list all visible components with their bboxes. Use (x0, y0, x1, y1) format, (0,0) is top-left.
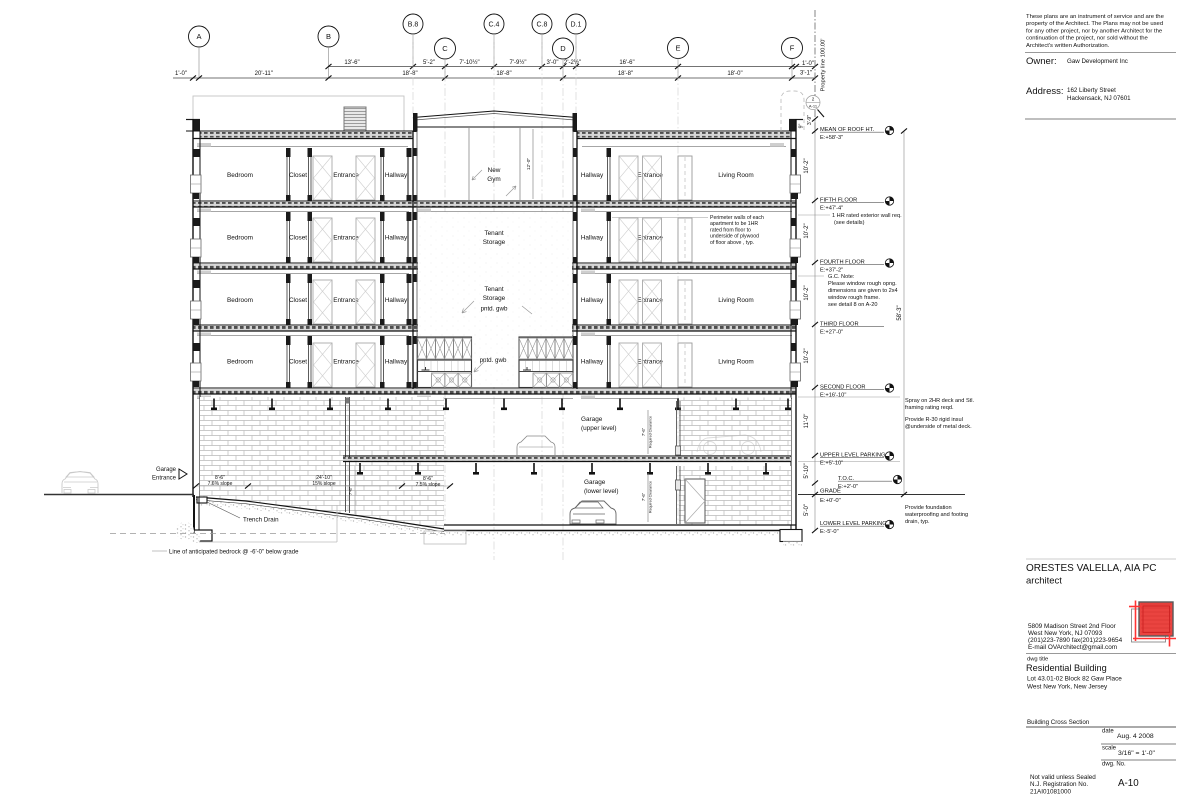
svg-text:5809 Madison Street 2nd Floor: 5809 Madison Street 2nd Floor (1028, 623, 1117, 630)
svg-text:Line of anticipated bedrock @: Line of anticipated bedrock @ -6'-0" bel… (169, 550, 299, 556)
svg-text:9": 9" (799, 123, 805, 128)
svg-text:13'-6": 13'-6" (344, 60, 359, 66)
svg-text:Provide R-30 rigid insul: Provide R-30 rigid insul (905, 417, 963, 423)
svg-text:C.8: C.8 (537, 22, 548, 29)
svg-text:dwg. No.: dwg. No. (1102, 762, 1126, 768)
svg-text:for any other project, nor by: for any other project, nor by another Ar… (1026, 28, 1163, 34)
svg-text:7.6% slope: 7.6% slope (208, 481, 233, 487)
svg-text:(201)223-7890 fax(201)223-9654: (201)223-7890 fax(201)223-9654 (1028, 637, 1123, 644)
svg-text:Bedroom: Bedroom (227, 235, 253, 242)
svg-text:10'-2": 10'-2" (804, 223, 810, 238)
svg-text:D.1: D.1 (571, 22, 582, 29)
svg-text:Hallway: Hallway (581, 235, 604, 242)
svg-text:pntd. gwb: pntd. gwb (481, 306, 508, 313)
svg-text:E-mail OVArchitect@gmail.com: E-mail OVArchitect@gmail.com (1028, 644, 1117, 651)
svg-text:E:+2'-0": E:+2'-0" (838, 484, 858, 490)
svg-text:Bedroom: Bedroom (227, 297, 253, 304)
svg-text:A-11: A-11 (809, 104, 818, 109)
svg-text:Entrance: Entrance (333, 235, 359, 242)
svg-text:E:+27'-0": E:+27'-0" (820, 330, 843, 336)
svg-text:Address:: Address: (1026, 86, 1064, 97)
svg-text:Living Room: Living Room (718, 359, 754, 366)
svg-text:Building Cross Section: Building Cross Section (1027, 719, 1090, 726)
svg-text:Entrance: Entrance (637, 297, 663, 304)
svg-text:continuation of the project, n: continuation of the project, nor sold wi… (1026, 36, 1149, 42)
svg-text:GRADE: GRADE (820, 489, 841, 495)
svg-text:Storage: Storage (483, 239, 506, 246)
svg-text:(upper level): (upper level) (581, 425, 617, 432)
svg-text:B: B (326, 32, 331, 41)
svg-text:Spray on 2HR deck and Stl.: Spray on 2HR deck and Stl. (905, 398, 974, 404)
svg-text:3'-0": 3'-0" (547, 60, 559, 66)
svg-text:15% slope: 15% slope (312, 481, 336, 487)
svg-text:@underside of metal deck.: @underside of metal deck. (905, 424, 972, 430)
svg-text:E: E (675, 44, 680, 53)
svg-text:Closet: Closet (289, 235, 307, 242)
svg-text:G.C. Note:: G.C. Note: (828, 274, 855, 280)
svg-text:7'-10½": 7'-10½" (459, 59, 479, 66)
svg-text:E:+58'-3": E:+58'-3" (820, 135, 843, 141)
svg-text:16'-6": 16'-6" (619, 60, 634, 66)
svg-text:E:+47'-4": E:+47'-4" (820, 206, 843, 212)
svg-text:drain, typ.: drain, typ. (905, 519, 930, 525)
svg-text:scale: scale (1102, 746, 1117, 752)
svg-text:18'-0": 18'-0" (727, 71, 742, 77)
svg-text:E:+37'-2": E:+37'-2" (820, 268, 843, 274)
svg-text:Bedroom: Bedroom (227, 359, 253, 366)
svg-text:1'-0": 1'-0" (175, 71, 187, 77)
svg-text:162 Liberty Street: 162 Liberty Street (1067, 87, 1116, 94)
svg-text:Bedroom: Bedroom (227, 172, 253, 179)
svg-text:dwg title: dwg title (1027, 657, 1048, 663)
svg-text:58'-3": 58'-3" (897, 305, 903, 320)
svg-text:21AI01081000: 21AI01081000 (1030, 788, 1071, 795)
svg-text:20'-11": 20'-11" (255, 71, 273, 77)
svg-text:New: New (488, 167, 501, 174)
svg-text:2'-2½": 2'-2½" (564, 59, 581, 66)
svg-text:Hallway: Hallway (581, 359, 604, 366)
svg-text:architect: architect (1026, 576, 1062, 587)
svg-text:Hallway: Hallway (385, 297, 408, 304)
svg-text:Owner:: Owner: (1026, 56, 1057, 67)
svg-text:E:+0'-0": E:+0'-0" (820, 498, 841, 504)
svg-text:property of the Architect. The: property of the Architect. The Plans may… (1026, 21, 1163, 27)
svg-text:Aug. 4 2008: Aug. 4 2008 (1117, 733, 1154, 740)
svg-text:These plans are an instrument: These plans are an instrument of service… (1026, 14, 1165, 20)
svg-text:2: 2 (812, 97, 815, 102)
svg-text:West New York, NJ 07093: West New York, NJ 07093 (1028, 630, 1103, 637)
svg-text:(lower level): (lower level) (584, 488, 618, 495)
svg-text:Architect's written Authorizat: Architect's written Authorization. (1026, 43, 1110, 49)
svg-text:E:-5'-0": E:-5'-0" (820, 529, 839, 535)
svg-text:Closet: Closet (289, 297, 307, 304)
svg-text:7'-6": 7'-6" (641, 427, 646, 436)
svg-text:ORESTES VALELLA, AIA PC: ORESTES VALELLA, AIA PC (1026, 563, 1156, 574)
svg-text:rated from floor to: rated from floor to (710, 227, 751, 233)
svg-text:dimensions are given to 2x4: dimensions are given to 2x4 (828, 288, 898, 294)
svg-text:1 HR rated exterior wall req.: 1 HR rated exterior wall req. (832, 213, 902, 219)
svg-text:Entrance: Entrance (333, 297, 359, 304)
svg-text:Provide foundation: Provide foundation (905, 505, 952, 511)
svg-text:Garage: Garage (584, 479, 606, 486)
svg-text:3'-1": 3'-1" (800, 71, 812, 77)
svg-text:Required Clearance: Required Clearance (649, 481, 653, 513)
svg-text:Entrance: Entrance (333, 359, 359, 366)
svg-text:7'-6": 7'-6" (348, 486, 353, 495)
svg-text:pntd. gwb: pntd. gwb (480, 357, 507, 364)
svg-text:E:+5'-10": E:+5'-10" (820, 461, 843, 467)
svg-text:Tenant: Tenant (484, 230, 503, 237)
svg-text:of floor above , typ.: of floor above , typ. (710, 240, 754, 246)
svg-text:10'-2": 10'-2" (804, 285, 810, 300)
svg-text:Hallway: Hallway (581, 297, 604, 304)
svg-text:Not valid unless Sealed: Not valid unless Sealed (1030, 774, 1096, 781)
svg-text:A: A (196, 32, 201, 41)
svg-text:Property line 100.00': Property line 100.00' (821, 39, 827, 92)
svg-text:5'-10": 5'-10" (804, 463, 810, 478)
svg-text:Closet: Closet (289, 359, 307, 366)
svg-text:C.4: C.4 (489, 22, 500, 29)
svg-text:Storage: Storage (483, 295, 506, 302)
svg-text:Living Room: Living Room (718, 297, 754, 304)
svg-text:Trench Drain: Trench Drain (243, 517, 279, 524)
svg-text:5'-0": 5'-0" (804, 504, 810, 516)
svg-text:Please window rough opng.: Please window rough opng. (828, 281, 897, 287)
svg-text:3/16" = 1'-0": 3/16" = 1'-0" (1118, 750, 1156, 757)
svg-text:West New York, New Jersey: West New York, New Jersey (1027, 684, 1108, 691)
svg-text:E:+16'-10": E:+16'-10" (820, 393, 846, 399)
svg-text:Hallway: Hallway (385, 172, 408, 179)
svg-text:18'-8": 18'-8" (618, 71, 633, 77)
svg-text:5'-2": 5'-2" (423, 60, 435, 66)
svg-text:Living Room: Living Room (718, 172, 754, 179)
svg-text:Perimeter walls of each: Perimeter walls of each (710, 215, 764, 221)
svg-text:framing rating reqd.: framing rating reqd. (905, 405, 954, 411)
svg-text:Gaw Development Inc: Gaw Development Inc (1067, 58, 1128, 65)
svg-text:Garage: Garage (581, 416, 603, 423)
svg-text:Entrance: Entrance (637, 172, 663, 179)
svg-text:C: C (442, 44, 448, 53)
svg-text:Hallway: Hallway (385, 235, 408, 242)
svg-text:apartment to be 1HR: apartment to be 1HR (710, 221, 758, 227)
svg-text:Hallway: Hallway (385, 359, 408, 366)
svg-text:1'-0": 1'-0" (802, 61, 814, 67)
svg-text:B.8: B.8 (408, 22, 419, 29)
svg-text:Hallway: Hallway (581, 172, 604, 179)
svg-text:18'-8": 18'-8" (402, 71, 417, 77)
svg-text:see detail 8 on A-20: see detail 8 on A-20 (828, 302, 877, 308)
svg-text:Tenant: Tenant (484, 286, 503, 293)
svg-text:Entrance: Entrance (152, 476, 177, 482)
svg-text:Garage: Garage (156, 467, 177, 473)
svg-text:7'-6": 7'-6" (641, 492, 646, 501)
svg-text:7'-9½": 7'-9½" (510, 59, 527, 66)
svg-text:A-10: A-10 (1118, 778, 1139, 789)
svg-text:11'-0": 11'-0" (804, 414, 810, 429)
svg-text:Closet: Closet (289, 172, 307, 179)
svg-text:underside of plywood: underside of plywood (710, 234, 759, 240)
svg-text:waterproofing and footing: waterproofing and footing (904, 512, 968, 518)
svg-text:date: date (1102, 729, 1114, 735)
svg-text:3'-9": 3'-9" (807, 115, 813, 125)
svg-text:Hackensack, NJ 07601: Hackensack, NJ 07601 (1067, 95, 1131, 102)
svg-text:Gym: Gym (487, 176, 501, 183)
svg-text:18'-8": 18'-8" (496, 71, 511, 77)
svg-text:N.J. Registration No.: N.J. Registration No. (1030, 781, 1088, 788)
svg-text:Required Clearance: Required Clearance (649, 416, 653, 448)
svg-text:window rough frame.: window rough frame. (827, 295, 880, 301)
svg-text:Residential Building: Residential Building (1026, 663, 1107, 673)
svg-text:Entrance: Entrance (333, 172, 359, 179)
svg-text:Entrance: Entrance (637, 359, 663, 366)
svg-text:D: D (560, 44, 566, 53)
svg-text:10'-2": 10'-2" (804, 158, 810, 173)
svg-text:12'-0": 12'-0" (526, 158, 532, 171)
svg-text:Lot 43.01-02 Block 82 Gaw Plac: Lot 43.01-02 Block 82 Gaw Place (1027, 676, 1122, 683)
svg-text:7.5% slope: 7.5% slope (416, 482, 441, 488)
svg-text:(see details): (see details) (834, 220, 865, 226)
svg-text:F: F (790, 44, 795, 53)
svg-text:10'-2": 10'-2" (804, 348, 810, 363)
